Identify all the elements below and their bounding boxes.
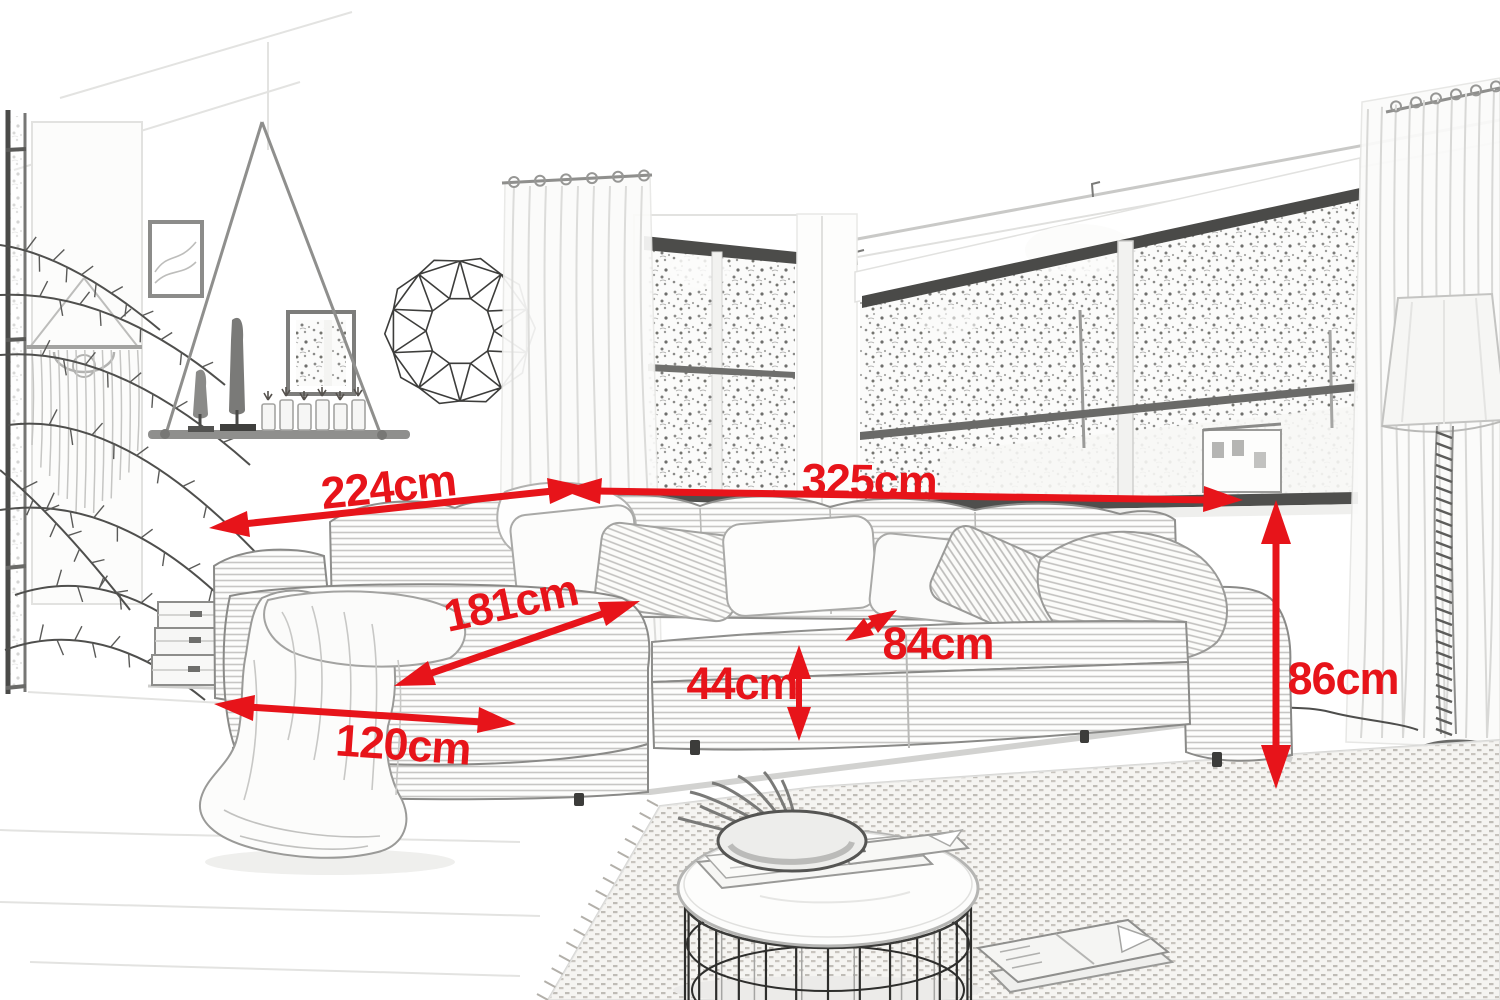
dimension-label-84: 84cm [882,618,993,669]
room-sketch: 224cm 325cm 181cm 84cm 44cm [0,0,1500,1000]
throw-pillow [722,515,878,617]
sofa-leg [690,740,700,755]
sofa-leg [1080,730,1089,743]
mountain-picture-frame [150,222,202,296]
macrame-wall-hanging [26,122,142,604]
glass-door [6,110,26,694]
dimension-label-86: 86cm [1287,653,1398,704]
botanical-picture-frame [288,312,354,394]
dimension-sketch-page: 224cm 325cm 181cm 84cm 44cm [0,0,1500,1000]
sofa-leg [1212,752,1222,767]
sofa-leg [574,793,584,806]
dimension-label-44: 44cm [686,658,797,709]
house-outside [1203,424,1281,492]
wooden-statuettes [188,318,256,432]
dimension-label-325: 325cm [801,454,937,507]
lamp-shade [1382,294,1500,426]
dimension-label-120: 120cm [334,714,472,774]
